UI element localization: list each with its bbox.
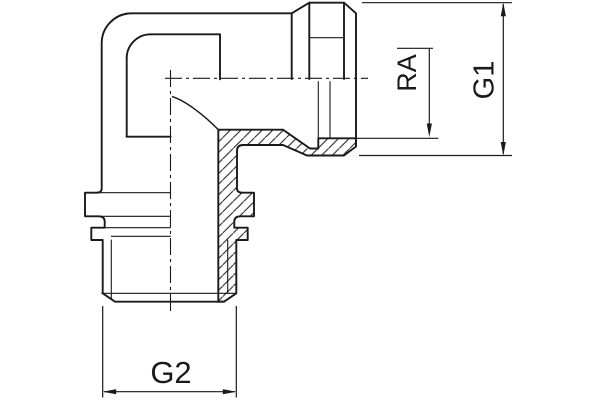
- section-material: [218, 130, 356, 302]
- centerlines: [165, 70, 368, 312]
- feature-lines: [85, 38, 438, 299]
- g1-arrowhead-top: [501, 3, 506, 17]
- g1-arrowhead-bottom: [501, 142, 506, 156]
- label-g1: G1: [469, 61, 501, 100]
- dimension-g2: G2: [103, 306, 237, 398]
- g2-arrowhead-right: [223, 389, 237, 394]
- section-hatch: [218, 130, 356, 302]
- label-ra: RA: [392, 54, 422, 92]
- break-curve: [173, 97, 219, 130]
- g2-arrowhead-left: [103, 389, 117, 394]
- label-g2: G2: [150, 355, 191, 390]
- right-hex-profile: [292, 3, 356, 147]
- outer-profile-left: [85, 13, 224, 301]
- dimension-ra: RA: [392, 48, 433, 137]
- dimension-g1: G1: [359, 3, 512, 156]
- inner-profile: [127, 34, 220, 58]
- ra-arrowhead: [427, 124, 432, 138]
- elbow-fitting-drawing: RA G1 G2: [0, 0, 600, 400]
- technical-drawing-canvas: RA G1 G2: [0, 0, 600, 400]
